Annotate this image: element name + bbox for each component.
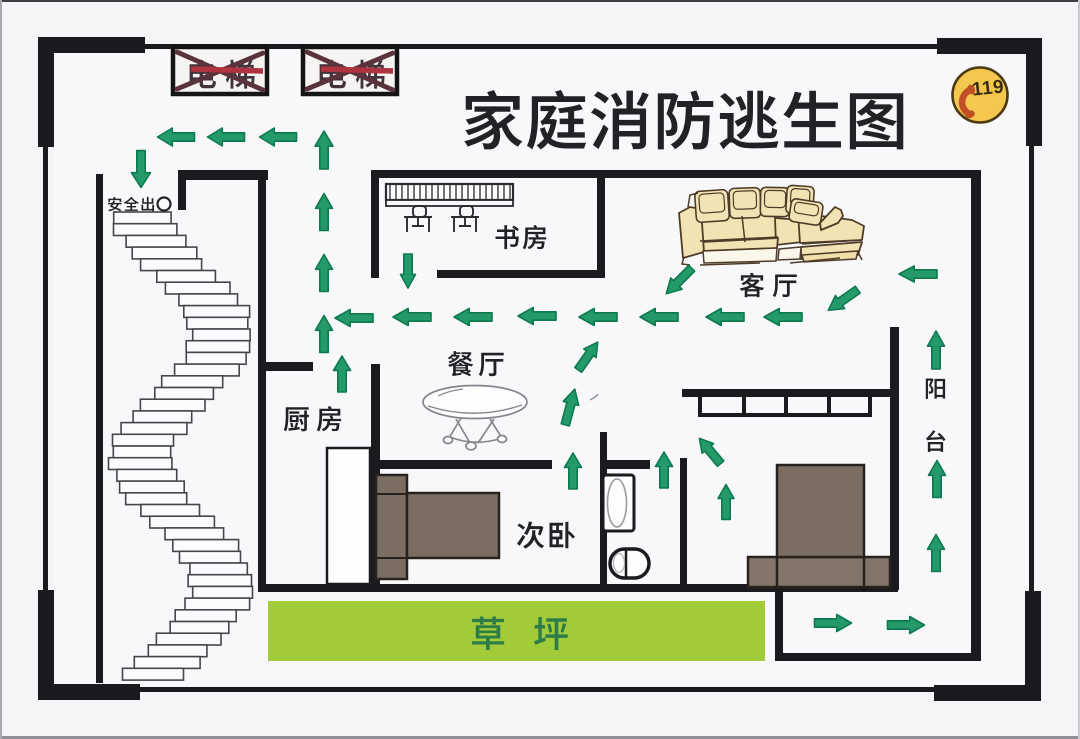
svg-text:119: 119: [971, 76, 1005, 100]
